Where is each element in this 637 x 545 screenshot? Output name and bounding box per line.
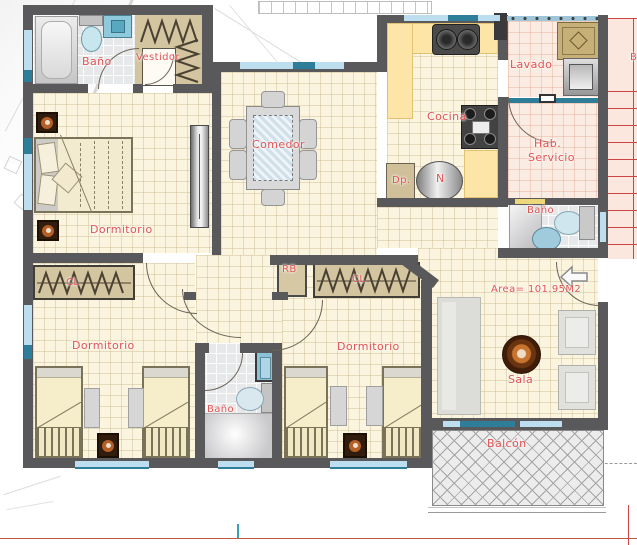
wall-service-bath-bottom — [498, 248, 608, 258]
wall-bath-bottom-left — [195, 343, 205, 458]
sink-tl-basin — [111, 20, 125, 33]
stove-panel — [472, 121, 490, 134]
dining-chair-right-2 — [299, 150, 317, 180]
closet-hangers-icon — [317, 266, 416, 294]
titleblock-teal-tick — [237, 524, 239, 538]
balcony-outer-edge — [428, 507, 606, 513]
staircase-label: B — [630, 52, 637, 64]
wall-topleft-bottom-3 — [173, 84, 213, 93]
floor-plan-canvas: B — [0, 0, 637, 545]
window-dining-top — [240, 62, 344, 69]
label-bedroom-bc: Dormitorio — [337, 341, 400, 353]
wall-bath-bottom-top-1 — [195, 343, 209, 353]
window-bottom-3 — [330, 461, 407, 469]
wall-kitchen-bottom — [377, 198, 508, 207]
dining-chair-left-1 — [229, 119, 247, 149]
armchair-2-cushion — [565, 372, 589, 403]
bed-fold — [286, 402, 326, 428]
label-bath-bottom: Baño — [207, 404, 234, 416]
background-scribble-bl — [3, 476, 60, 495]
plant-table-master-2 — [37, 220, 59, 241]
nightstand-bl-2 — [128, 388, 144, 428]
burner-bl — [464, 133, 476, 145]
sink-bowl-left — [436, 29, 457, 50]
label-bedroom-bl: Dormitorio — [72, 340, 135, 352]
window-kitchen-top-seg — [448, 15, 478, 21]
label-kitchen: Cocina — [427, 111, 467, 123]
label-master-bedroom: Dormitorio — [90, 224, 153, 236]
window-bottom-2 — [218, 461, 254, 469]
window-dining-top-seg — [293, 62, 315, 69]
bed-bl-2 — [142, 366, 190, 458]
plant-table-bl — [97, 433, 119, 458]
burner-tr — [484, 108, 496, 120]
bed-fold — [384, 402, 426, 428]
window-living-bottom-seg — [460, 421, 515, 427]
sofa — [437, 297, 481, 415]
label-vestidor: Vestidor — [136, 52, 180, 64]
label-service-room-line2: Servicio — [528, 152, 575, 164]
right-red-line — [628, 505, 629, 545]
closet-bedroom-bc — [313, 262, 420, 298]
master-bed-blanket-dash-4 — [122, 141, 123, 209]
sink-bowl-right — [457, 29, 478, 50]
master-shelf-divider — [199, 134, 200, 219]
bed-bc-1 — [284, 366, 328, 458]
flower-center-icon — [353, 443, 358, 448]
kitchen-counter-bottom — [464, 150, 498, 198]
label-service-room-line1: Hab. — [534, 138, 561, 150]
sink-tl — [103, 15, 132, 38]
closet-bedroom-bl — [33, 265, 135, 300]
wall-bath-bottom-right — [272, 343, 282, 458]
label-bath-topleft: Baño — [82, 56, 112, 68]
flower-center-icon — [46, 228, 51, 233]
window-bedroom-bl-left-seg — [24, 345, 32, 359]
dining-chair-top — [261, 91, 285, 108]
dining-chair-bottom — [261, 189, 285, 206]
wall-topleft-top — [23, 5, 213, 15]
toilet-tank-tl — [79, 15, 103, 26]
bed-foot-stripes — [144, 427, 188, 456]
label-service-bath: Baño — [527, 205, 554, 217]
bed-foot-stripes — [37, 427, 81, 456]
bath-bottom-mirror-inner — [260, 357, 271, 379]
kitchen-sink — [432, 24, 480, 55]
bed-fold — [37, 402, 81, 428]
armchair-1-cushion — [565, 317, 589, 348]
window-service-bath-top-yellow — [515, 199, 545, 204]
window-living-bottom-2 — [520, 421, 562, 427]
closet-hangers-icon — [37, 269, 131, 296]
bed-foot-stripes — [286, 427, 326, 456]
master-bed-blanket-dash-3 — [108, 141, 109, 209]
wall-hall-stub-right — [272, 292, 288, 300]
toilet-bowl-tl — [81, 26, 102, 52]
label-rb: RB — [282, 264, 297, 276]
label-area: Area= 101.95M2 — [491, 284, 581, 296]
sofa-cushion-line — [442, 302, 456, 410]
nightstand-bl-1 — [84, 388, 100, 428]
label-closet-bc: CL — [352, 274, 365, 286]
master-shelf-unit — [190, 125, 209, 228]
laundry-basket — [557, 22, 600, 60]
wall-kitchen-left — [377, 15, 387, 72]
plant-table-master-1 — [36, 112, 58, 133]
window-bottom-1 — [75, 461, 149, 469]
label-balcony: Balcón — [487, 438, 527, 450]
titleblock-red-line — [0, 538, 637, 539]
bathtub-basin — [41, 21, 72, 79]
bed-headboard — [37, 368, 81, 378]
master-bed — [34, 137, 133, 213]
label-living: Sala — [508, 374, 533, 386]
wall-dining-master-divider — [212, 62, 221, 255]
nightstand-bc-1 — [330, 386, 347, 426]
label-dining: Comedor — [252, 139, 305, 151]
round-coffee-table — [502, 335, 541, 374]
wall-topleft-bottom-1 — [33, 84, 88, 93]
washing-machine — [563, 58, 599, 96]
bed-foot-stripes — [384, 427, 426, 456]
plant-table-bc — [343, 433, 367, 458]
flower-center-icon — [106, 443, 111, 448]
wall-bedroom-bc-right — [421, 280, 432, 468]
window-bath-tl-left-seg — [24, 70, 32, 82]
wall-right-mid — [598, 302, 608, 418]
bath-bottom-shower — [203, 413, 274, 460]
master-bed-blanket-dash-1 — [80, 143, 81, 207]
label-refrigerator: N — [436, 173, 445, 185]
armchair-1 — [558, 310, 596, 355]
window-service-bath-right — [600, 212, 606, 242]
bed-bl-1 — [35, 366, 83, 458]
label-closet-bl: CL — [66, 277, 79, 289]
bed-headboard — [286, 368, 326, 378]
label-pantry: Dp. — [392, 175, 410, 187]
dining-chair-left-2 — [229, 150, 247, 180]
nightstand-bc-2 — [366, 386, 383, 426]
kitchen-counter-left — [387, 23, 413, 119]
bed-fold — [144, 402, 188, 428]
bathtub — [35, 16, 78, 84]
laundry-railing — [507, 16, 598, 21]
wall-kitchen-service-divider — [498, 97, 508, 207]
label-laundry: Lavado — [510, 59, 552, 71]
bed-headboard — [384, 368, 426, 378]
master-bed-blanket-dash-2 — [94, 141, 95, 209]
armchair-2 — [558, 365, 596, 410]
hall-passage-floor — [377, 207, 498, 248]
burner-br — [484, 133, 496, 145]
bed-headboard — [144, 368, 188, 378]
background-scale-bar — [258, 1, 432, 14]
washing-machine-door — [569, 64, 593, 90]
service-toilet-tank — [579, 206, 595, 240]
wall-master-bottom — [23, 253, 143, 263]
background-scribble-bl2 — [6, 501, 53, 510]
window-master-left-seg — [24, 138, 32, 154]
bath-bottom-toilet-bowl — [236, 387, 264, 411]
flower-center-icon — [45, 120, 50, 125]
